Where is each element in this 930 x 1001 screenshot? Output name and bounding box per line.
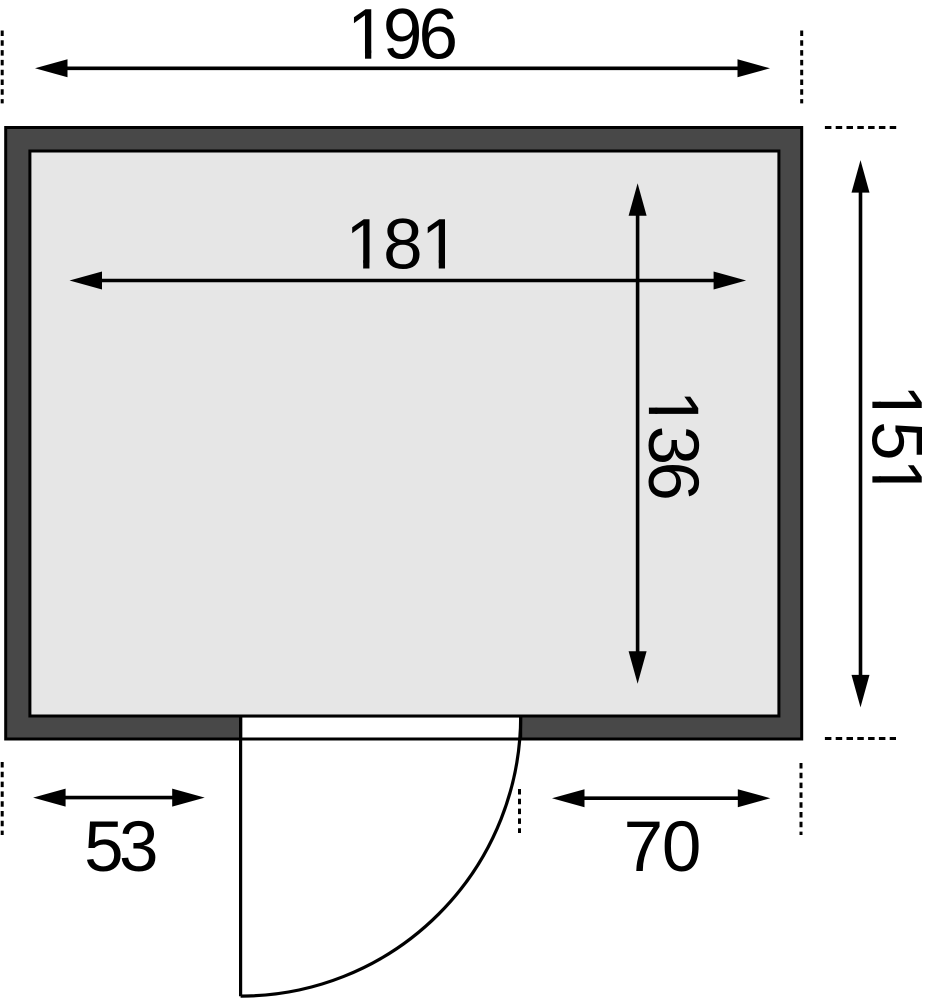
svg-text:70: 70 xyxy=(624,808,701,887)
svg-text:181: 181 xyxy=(345,206,458,285)
svg-text:53: 53 xyxy=(84,808,156,887)
svg-text:136: 136 xyxy=(633,390,712,499)
svg-text:196: 196 xyxy=(347,0,455,75)
svg-text:151: 151 xyxy=(856,384,930,496)
